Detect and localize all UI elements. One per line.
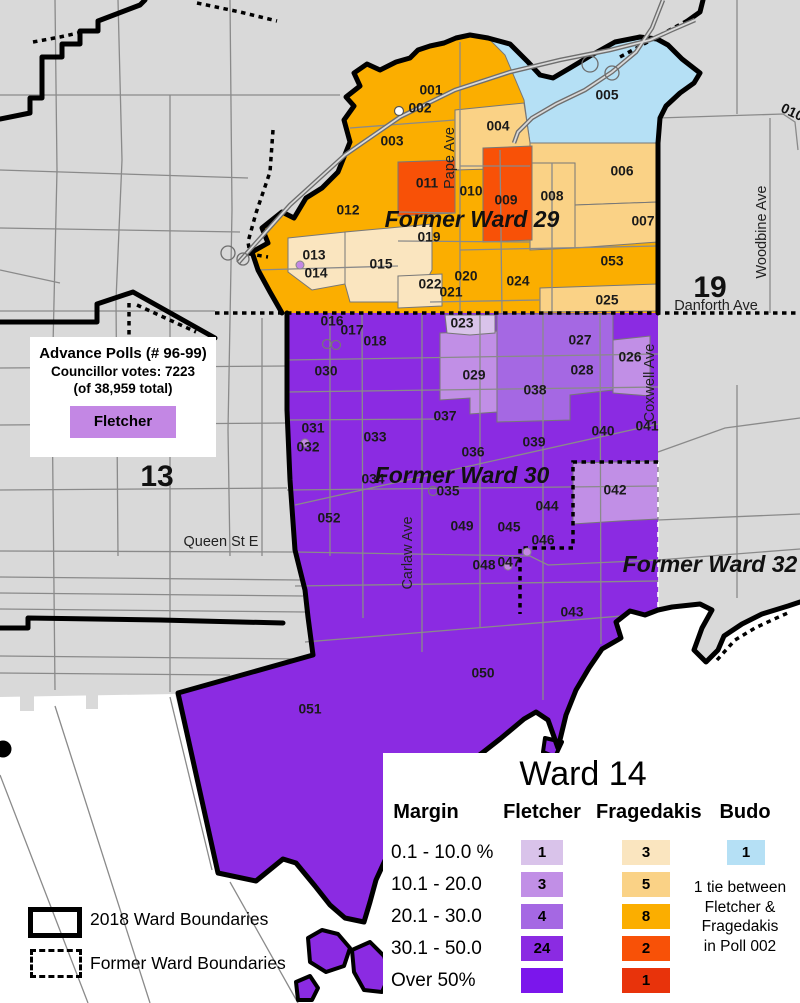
legend-swatch-fragedakis-1: 3: [622, 840, 670, 865]
fletcher-advance-swatch: Fletcher: [70, 406, 176, 438]
poll-label-011: 011: [416, 176, 439, 191]
poll-label-042: 042: [603, 483, 626, 498]
margin-range-label: 0.1 - 10.0 %: [391, 840, 493, 866]
margin-range-label: Over 50%: [391, 968, 475, 994]
legend-swatch-fletcher-4: 24: [521, 936, 563, 961]
poll-label-006: 006: [610, 164, 633, 179]
poll-label-049: 049: [450, 519, 473, 534]
former-ward-label: Former Ward 32: [623, 551, 798, 577]
poll-label-032: 032: [296, 440, 319, 455]
legend-swatch-fletcher-2: 3: [521, 872, 563, 897]
margin-range-label: 10.1 - 20.0: [391, 872, 482, 898]
poll-label-015: 015: [369, 257, 392, 272]
poll-label-037: 037: [433, 409, 456, 424]
column-header-budo: Budo: [705, 801, 785, 824]
poll-label-027: 027: [568, 333, 591, 348]
poll-label-025: 025: [595, 293, 618, 308]
poll-label-030: 030: [314, 364, 337, 379]
poll-label-023: 023: [450, 316, 473, 331]
poll-label-007: 007: [631, 214, 654, 229]
poll-label-004: 004: [486, 119, 509, 134]
poll-label-017: 017: [340, 323, 363, 338]
poll-label-001: 001: [419, 83, 442, 98]
poll-label-047: 047: [497, 555, 520, 570]
dashed-boundary-swatch: [30, 949, 82, 978]
poll-label-013: 013: [302, 248, 325, 263]
legend-swatch-fletcher-1: 1: [521, 840, 563, 865]
legend-swatch-fragedakis-4: 2: [622, 936, 670, 961]
poll-label-022: 022: [418, 277, 441, 292]
margin-range-label: 20.1 - 30.0: [391, 904, 482, 930]
street-label: Woodbine Ave: [754, 186, 770, 279]
boundaries-legend: 2018 Ward Boundaries Former Ward Boundar…: [25, 903, 365, 979]
street-label: Queen St E: [184, 534, 259, 550]
poll-label-046: 046: [531, 533, 554, 548]
poll-label-028: 028: [570, 363, 593, 378]
poll-label-051: 051: [298, 702, 321, 717]
tie-note-line: in Poll 002: [681, 937, 799, 957]
poll-label-005: 005: [595, 88, 618, 103]
advance-polls-info-box: Advance Polls (# 96-99) Councillor votes…: [30, 337, 216, 457]
solid-boundary-label: 2018 Ward Boundaries: [90, 909, 268, 930]
poll-label-044: 044: [535, 499, 558, 514]
poll-label-033: 033: [363, 430, 386, 445]
poll-label-048: 048: [472, 558, 495, 573]
margin-range-label: 30.1 - 50.0: [391, 936, 482, 962]
poll-label-014: 014: [304, 266, 327, 281]
street-label: Coxwell Ave: [642, 344, 658, 423]
legend-swatch-fragedakis-2: 5: [622, 872, 670, 897]
margin-legend: Ward 14 Margin Fletcher Fragedakis Budo …: [383, 753, 800, 1003]
advance-poll-marker: [523, 548, 531, 556]
poll-label-043: 043: [560, 605, 583, 620]
tie-note-line: 1 tie between: [681, 878, 799, 898]
poll-label-010: 010: [459, 184, 482, 199]
former-ward-label: Former Ward 29: [385, 206, 560, 232]
column-header-fletcher: Fletcher: [502, 801, 582, 824]
councillor-votes: Councillor votes: 7223: [30, 364, 216, 379]
legend-swatch-fragedakis-5: 1: [622, 968, 670, 993]
margin-header: Margin: [391, 801, 461, 824]
street-label: Carlaw Ave: [400, 516, 416, 589]
tie-note-line: Fragedakis: [681, 917, 799, 937]
poll-label-026: 026: [618, 350, 641, 365]
poll-label-045: 045: [497, 520, 520, 535]
legend-title: Ward 14: [383, 755, 783, 794]
poll-label-020: 020: [454, 269, 477, 284]
advance-polls-title: Advance Polls (# 96-99): [30, 345, 216, 362]
tie-marker: [395, 107, 404, 116]
solid-boundary-swatch: [28, 907, 82, 938]
legend-swatch-fletcher-3: 4: [521, 904, 563, 929]
ward-number-label: 19: [693, 271, 726, 304]
poll-label-003: 003: [380, 134, 403, 149]
legend-swatch-fletcher-5: [521, 968, 563, 993]
poll-label-029: 029: [462, 368, 485, 383]
poll-label-012: 012: [336, 203, 359, 218]
legend-swatch-budo-1: 1: [727, 840, 765, 865]
column-header-fragedakis: Fragedakis: [596, 801, 700, 824]
ward-number-label: 13: [140, 460, 173, 493]
poll-label-038: 038: [523, 383, 546, 398]
map-screenshot: 0010020030040050060070080090100110120130…: [0, 0, 800, 1003]
poll-label-036: 036: [461, 445, 484, 460]
dashed-boundary-label: Former Ward Boundaries: [90, 953, 286, 974]
total-votes: (of 38,959 total): [30, 381, 216, 396]
poll-label-040: 040: [591, 424, 614, 439]
tie-note: 1 tie betweenFletcher &Fragedakisin Poll…: [681, 878, 799, 956]
legend-swatch-fragedakis-3: 8: [622, 904, 670, 929]
former-ward-label: Former Ward 30: [375, 462, 550, 488]
poll-label-018: 018: [363, 334, 386, 349]
poll-label-031: 031: [301, 421, 324, 436]
poll-label-039: 039: [522, 435, 545, 450]
poll-label-024: 024: [506, 274, 529, 289]
poll-label-002: 002: [408, 101, 431, 116]
poll-label-021: 021: [439, 285, 462, 300]
street-label: Pape Ave: [442, 127, 458, 189]
poll-label-008: 008: [540, 189, 563, 204]
poll-label-053: 053: [600, 254, 623, 269]
poll-label-050: 050: [471, 666, 494, 681]
poll-label-052: 052: [317, 511, 340, 526]
tie-note-line: Fletcher &: [681, 898, 799, 918]
